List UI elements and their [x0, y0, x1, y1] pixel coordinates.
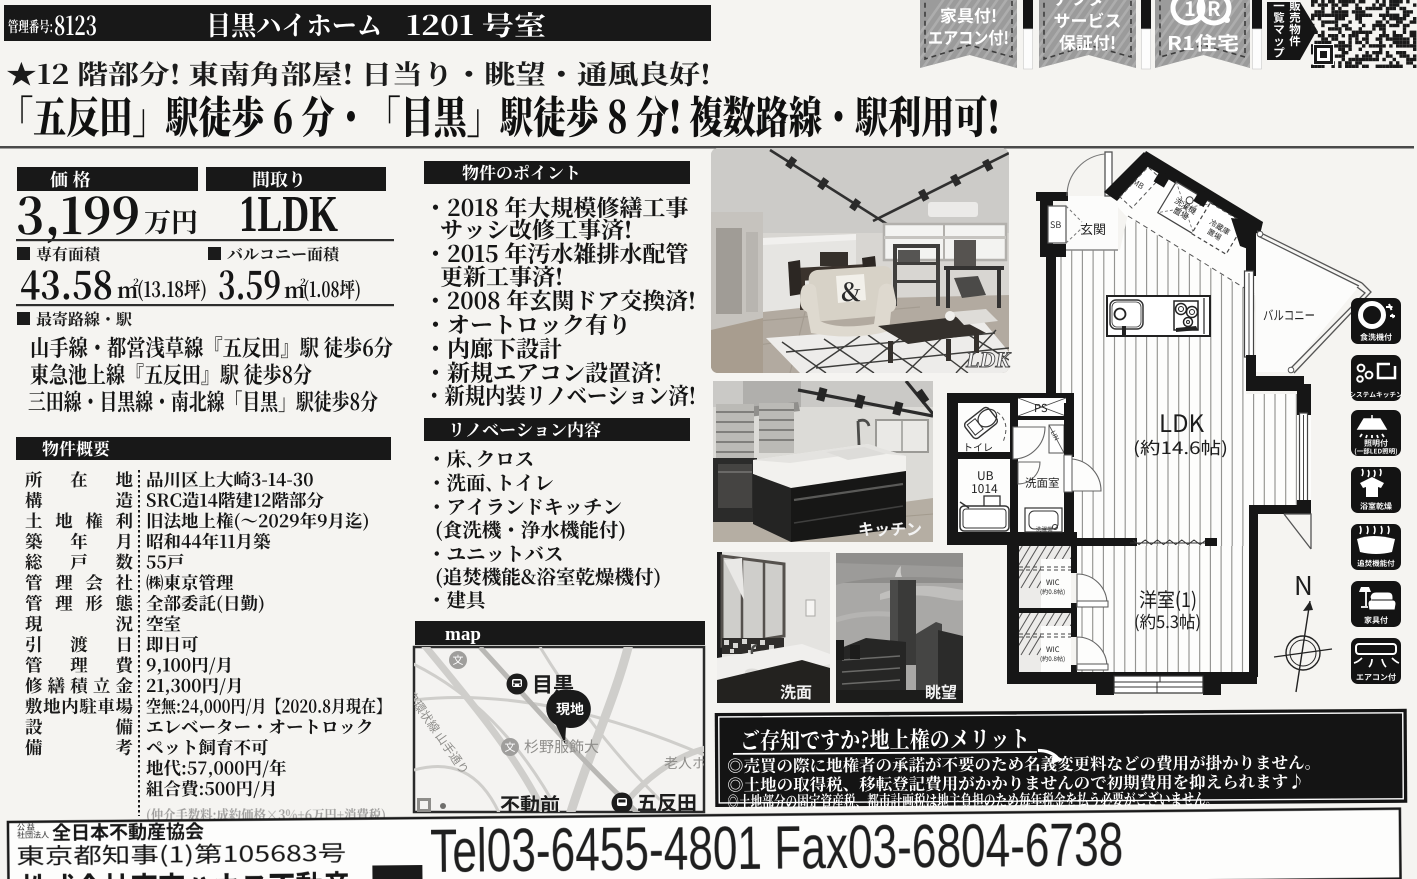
- svg-text:map: map: [445, 624, 481, 645]
- svg-text:1LDK: 1LDK: [239, 186, 338, 243]
- svg-text:LDK: LDK: [965, 347, 1011, 372]
- svg-text:Tel03-6455-4801 Fax03-6804-673: Tel03-6455-4801 Fax03-6804-6738: [430, 810, 1124, 879]
